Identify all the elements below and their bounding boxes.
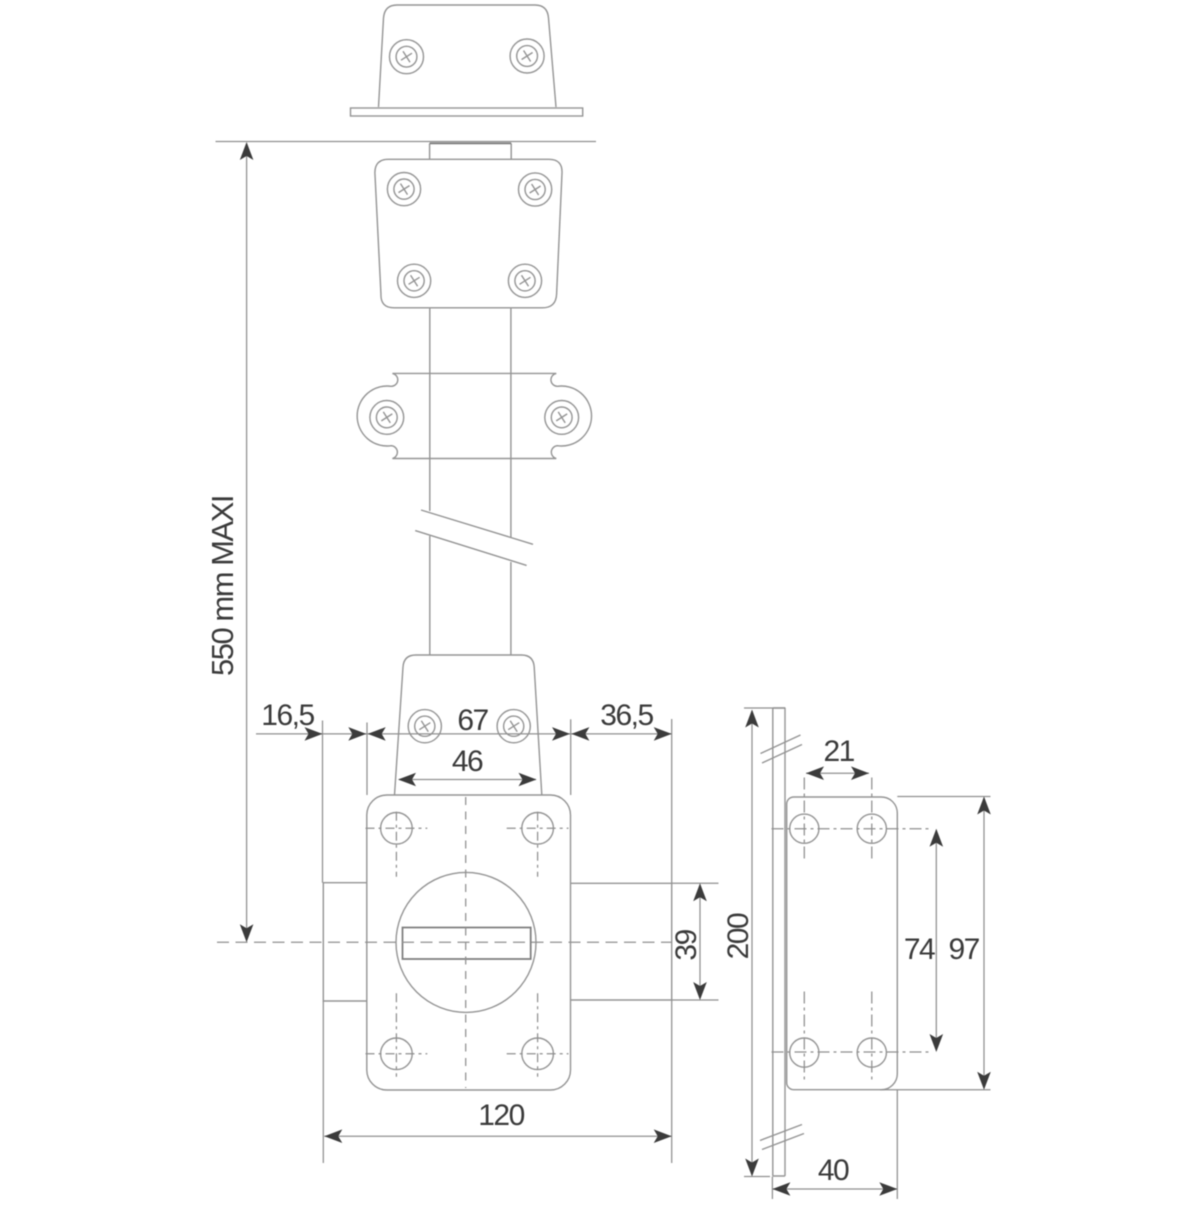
svg-text:39: 39 bbox=[670, 929, 703, 960]
svg-text:36,5: 36,5 bbox=[600, 699, 653, 732]
svg-text:97: 97 bbox=[949, 933, 980, 966]
svg-text:21: 21 bbox=[824, 735, 855, 768]
svg-text:120: 120 bbox=[478, 1099, 524, 1132]
svg-text:67: 67 bbox=[457, 704, 488, 737]
svg-text:550 mm MAXI: 550 mm MAXI bbox=[205, 496, 240, 676]
svg-text:40: 40 bbox=[818, 1154, 849, 1187]
svg-text:46: 46 bbox=[452, 745, 483, 778]
svg-text:200: 200 bbox=[722, 913, 755, 959]
svg-text:16,5: 16,5 bbox=[261, 699, 314, 732]
svg-text:74: 74 bbox=[904, 933, 935, 966]
